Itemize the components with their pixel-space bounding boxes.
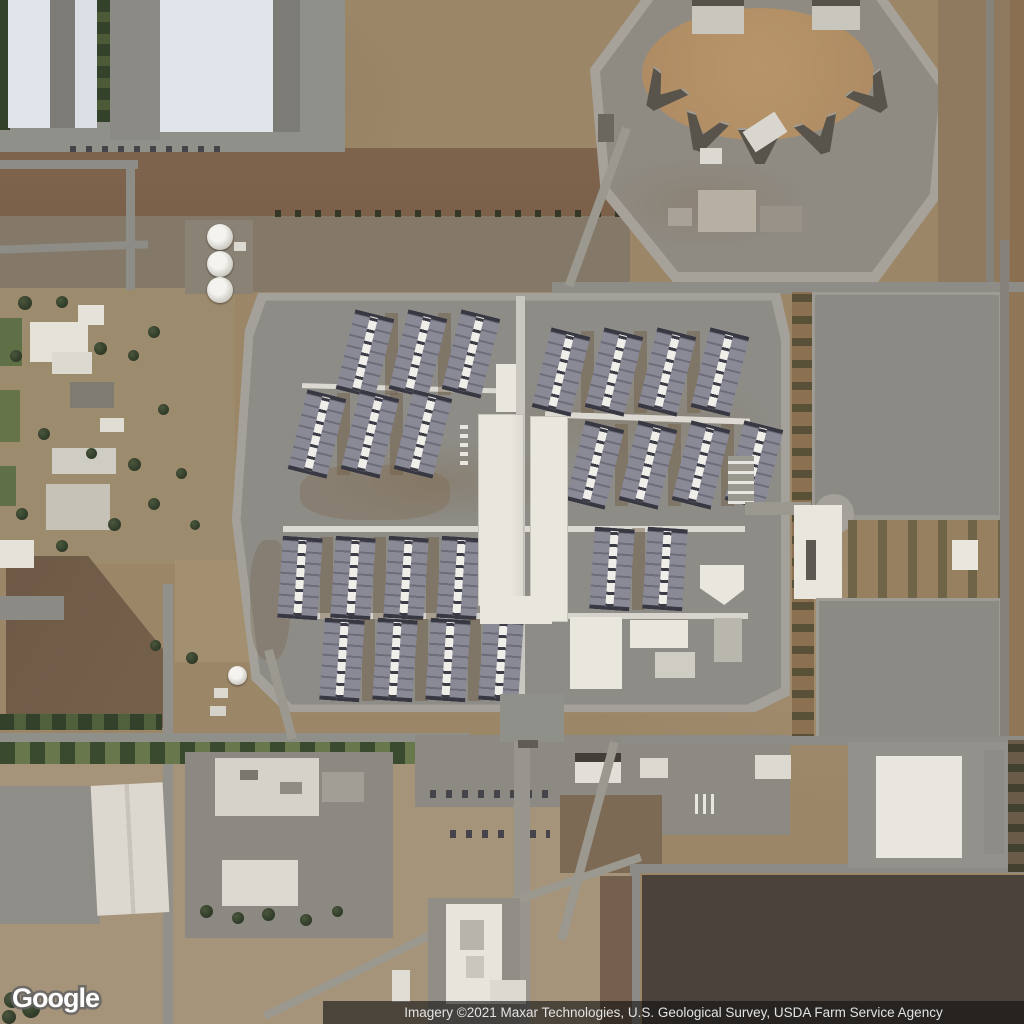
barracks-cluster bbox=[345, 313, 491, 395]
tree bbox=[18, 296, 32, 310]
tree bbox=[190, 520, 200, 530]
tree bbox=[148, 498, 160, 510]
industrial-building-detail bbox=[240, 770, 258, 780]
tree-strip bbox=[1008, 740, 1024, 872]
octagon-building bbox=[668, 208, 692, 226]
loading-docks bbox=[50, 0, 75, 128]
campus-building bbox=[70, 382, 114, 408]
dirt-edge-strip bbox=[1009, 292, 1024, 747]
road bbox=[0, 160, 138, 169]
barracks-building bbox=[589, 527, 635, 612]
tree bbox=[56, 296, 68, 308]
tree bbox=[94, 342, 107, 355]
octagon-building bbox=[760, 206, 802, 232]
dirt-band-red bbox=[0, 148, 630, 218]
barracks-cluster bbox=[541, 331, 740, 413]
barracks-building bbox=[389, 309, 448, 398]
parking-lot-south bbox=[816, 598, 1002, 744]
barracks-building bbox=[341, 389, 400, 478]
big-box-building bbox=[876, 756, 962, 858]
barracks-building bbox=[336, 309, 395, 398]
tree bbox=[10, 350, 22, 362]
central-building bbox=[496, 364, 516, 412]
satellite-map-canvas[interactable]: Google Google Imagery ©2021 Maxar Techno… bbox=[0, 0, 1024, 1024]
barracks-building bbox=[619, 420, 678, 509]
barracks-cluster bbox=[280, 537, 479, 619]
facility-courtyard bbox=[466, 956, 484, 978]
dark-plowed-hill-field bbox=[6, 556, 164, 728]
central-building bbox=[530, 416, 568, 622]
grass-patch bbox=[0, 466, 16, 506]
road bbox=[126, 160, 135, 290]
grass-patch bbox=[0, 390, 20, 442]
road-apron bbox=[500, 694, 564, 742]
tree bbox=[332, 906, 343, 917]
barracks-building bbox=[288, 389, 347, 478]
barracks-cluster bbox=[592, 528, 685, 610]
tree bbox=[186, 652, 198, 664]
tree-median bbox=[97, 0, 110, 122]
fence-tree-row bbox=[275, 210, 625, 217]
post-row bbox=[695, 794, 717, 814]
barracks-building bbox=[478, 618, 524, 703]
barracks-building bbox=[566, 420, 625, 509]
tree bbox=[16, 508, 28, 520]
tree bbox=[232, 912, 244, 924]
tree bbox=[108, 518, 121, 531]
barracks-building bbox=[436, 536, 482, 621]
parking-lot-north bbox=[812, 292, 1002, 518]
barracks-cluster bbox=[322, 619, 521, 701]
barracks-building bbox=[277, 536, 323, 621]
dirt-edge-strip bbox=[1010, 0, 1024, 292]
industrial-building bbox=[322, 772, 364, 802]
vehicle-row bbox=[450, 830, 550, 838]
barracks-building bbox=[585, 327, 644, 416]
octagon-building bbox=[698, 190, 756, 232]
campus-building bbox=[100, 418, 124, 432]
facility-courtyard bbox=[460, 920, 484, 950]
car-lot bbox=[0, 596, 64, 620]
campus-building bbox=[78, 305, 104, 325]
warehouse-roof-east bbox=[160, 0, 273, 132]
road bbox=[1000, 240, 1009, 745]
road bbox=[163, 584, 173, 1024]
service-building bbox=[655, 652, 695, 678]
vehicle-row bbox=[430, 790, 550, 798]
vehicle-row bbox=[460, 425, 468, 465]
octagon-building bbox=[812, 0, 860, 30]
tree bbox=[150, 640, 161, 651]
industrial-building bbox=[215, 758, 319, 816]
google-logo-text: Google bbox=[12, 983, 99, 1013]
water-tank bbox=[207, 251, 233, 277]
water-tank bbox=[207, 277, 233, 303]
access-road bbox=[110, 0, 160, 140]
central-building bbox=[480, 596, 552, 624]
tree bbox=[128, 458, 141, 471]
octagon-building bbox=[700, 148, 722, 164]
warehouse-long bbox=[91, 782, 170, 916]
barracks-building bbox=[319, 618, 365, 703]
outbuilding bbox=[952, 540, 978, 570]
barracks-building bbox=[638, 327, 697, 416]
tree bbox=[128, 350, 139, 361]
barracks-building bbox=[532, 327, 591, 416]
barracks-building bbox=[372, 618, 418, 703]
tree bbox=[56, 540, 68, 552]
attribution-bar: Imagery ©2021 Maxar Technologies, U.S. G… bbox=[323, 1001, 1024, 1024]
service-building bbox=[630, 620, 688, 648]
industrial-apron bbox=[0, 786, 100, 924]
truck-row bbox=[70, 146, 220, 152]
entrance-building-court bbox=[806, 540, 816, 580]
tree bbox=[148, 326, 160, 338]
tree bbox=[300, 914, 312, 926]
outbuilding bbox=[640, 758, 668, 778]
dirt-band-gray bbox=[0, 216, 630, 292]
industrial-building bbox=[222, 860, 298, 906]
loading-docks bbox=[273, 0, 300, 132]
outbuilding bbox=[755, 755, 791, 779]
tree-row bbox=[0, 714, 162, 730]
google-logo[interactable]: Google Google bbox=[12, 983, 99, 1014]
checkpoint bbox=[518, 740, 538, 748]
central-building bbox=[478, 414, 524, 606]
shed bbox=[214, 688, 228, 698]
water-tank bbox=[207, 224, 233, 250]
barracks-building bbox=[642, 527, 688, 612]
road bbox=[0, 733, 470, 742]
service-building bbox=[714, 618, 742, 662]
service-building bbox=[570, 617, 622, 689]
barracks-building bbox=[330, 536, 376, 621]
barracks-building bbox=[383, 536, 429, 621]
campus-building bbox=[46, 484, 110, 530]
tree bbox=[262, 908, 275, 921]
tree bbox=[176, 468, 187, 479]
road bbox=[986, 0, 994, 290]
warehouse-roof-west bbox=[8, 0, 50, 128]
shed bbox=[210, 706, 226, 716]
tree bbox=[158, 404, 169, 415]
shed bbox=[234, 242, 246, 251]
tree bbox=[200, 905, 213, 918]
industrial-building-detail bbox=[280, 782, 302, 794]
attribution-text: Imagery ©2021 Maxar Technologies, U.S. G… bbox=[404, 1005, 942, 1020]
outbuilding bbox=[392, 970, 410, 1002]
tree bbox=[38, 428, 50, 440]
water-tank bbox=[228, 666, 247, 685]
barracks-building bbox=[672, 420, 731, 509]
campus-building bbox=[52, 448, 116, 474]
warehouse-roof-west-annex bbox=[75, 0, 97, 128]
tree bbox=[86, 448, 97, 459]
octagon-building bbox=[692, 0, 744, 34]
parking-strip bbox=[984, 750, 1004, 854]
octagon-building bbox=[598, 114, 614, 142]
campus-building bbox=[0, 540, 34, 568]
campus-building bbox=[52, 352, 92, 374]
dirt-storage-yard bbox=[560, 795, 662, 873]
barracks-building bbox=[425, 618, 471, 703]
annex-building bbox=[728, 456, 754, 504]
entrance-building bbox=[794, 505, 842, 599]
barracks-cluster bbox=[297, 393, 443, 475]
